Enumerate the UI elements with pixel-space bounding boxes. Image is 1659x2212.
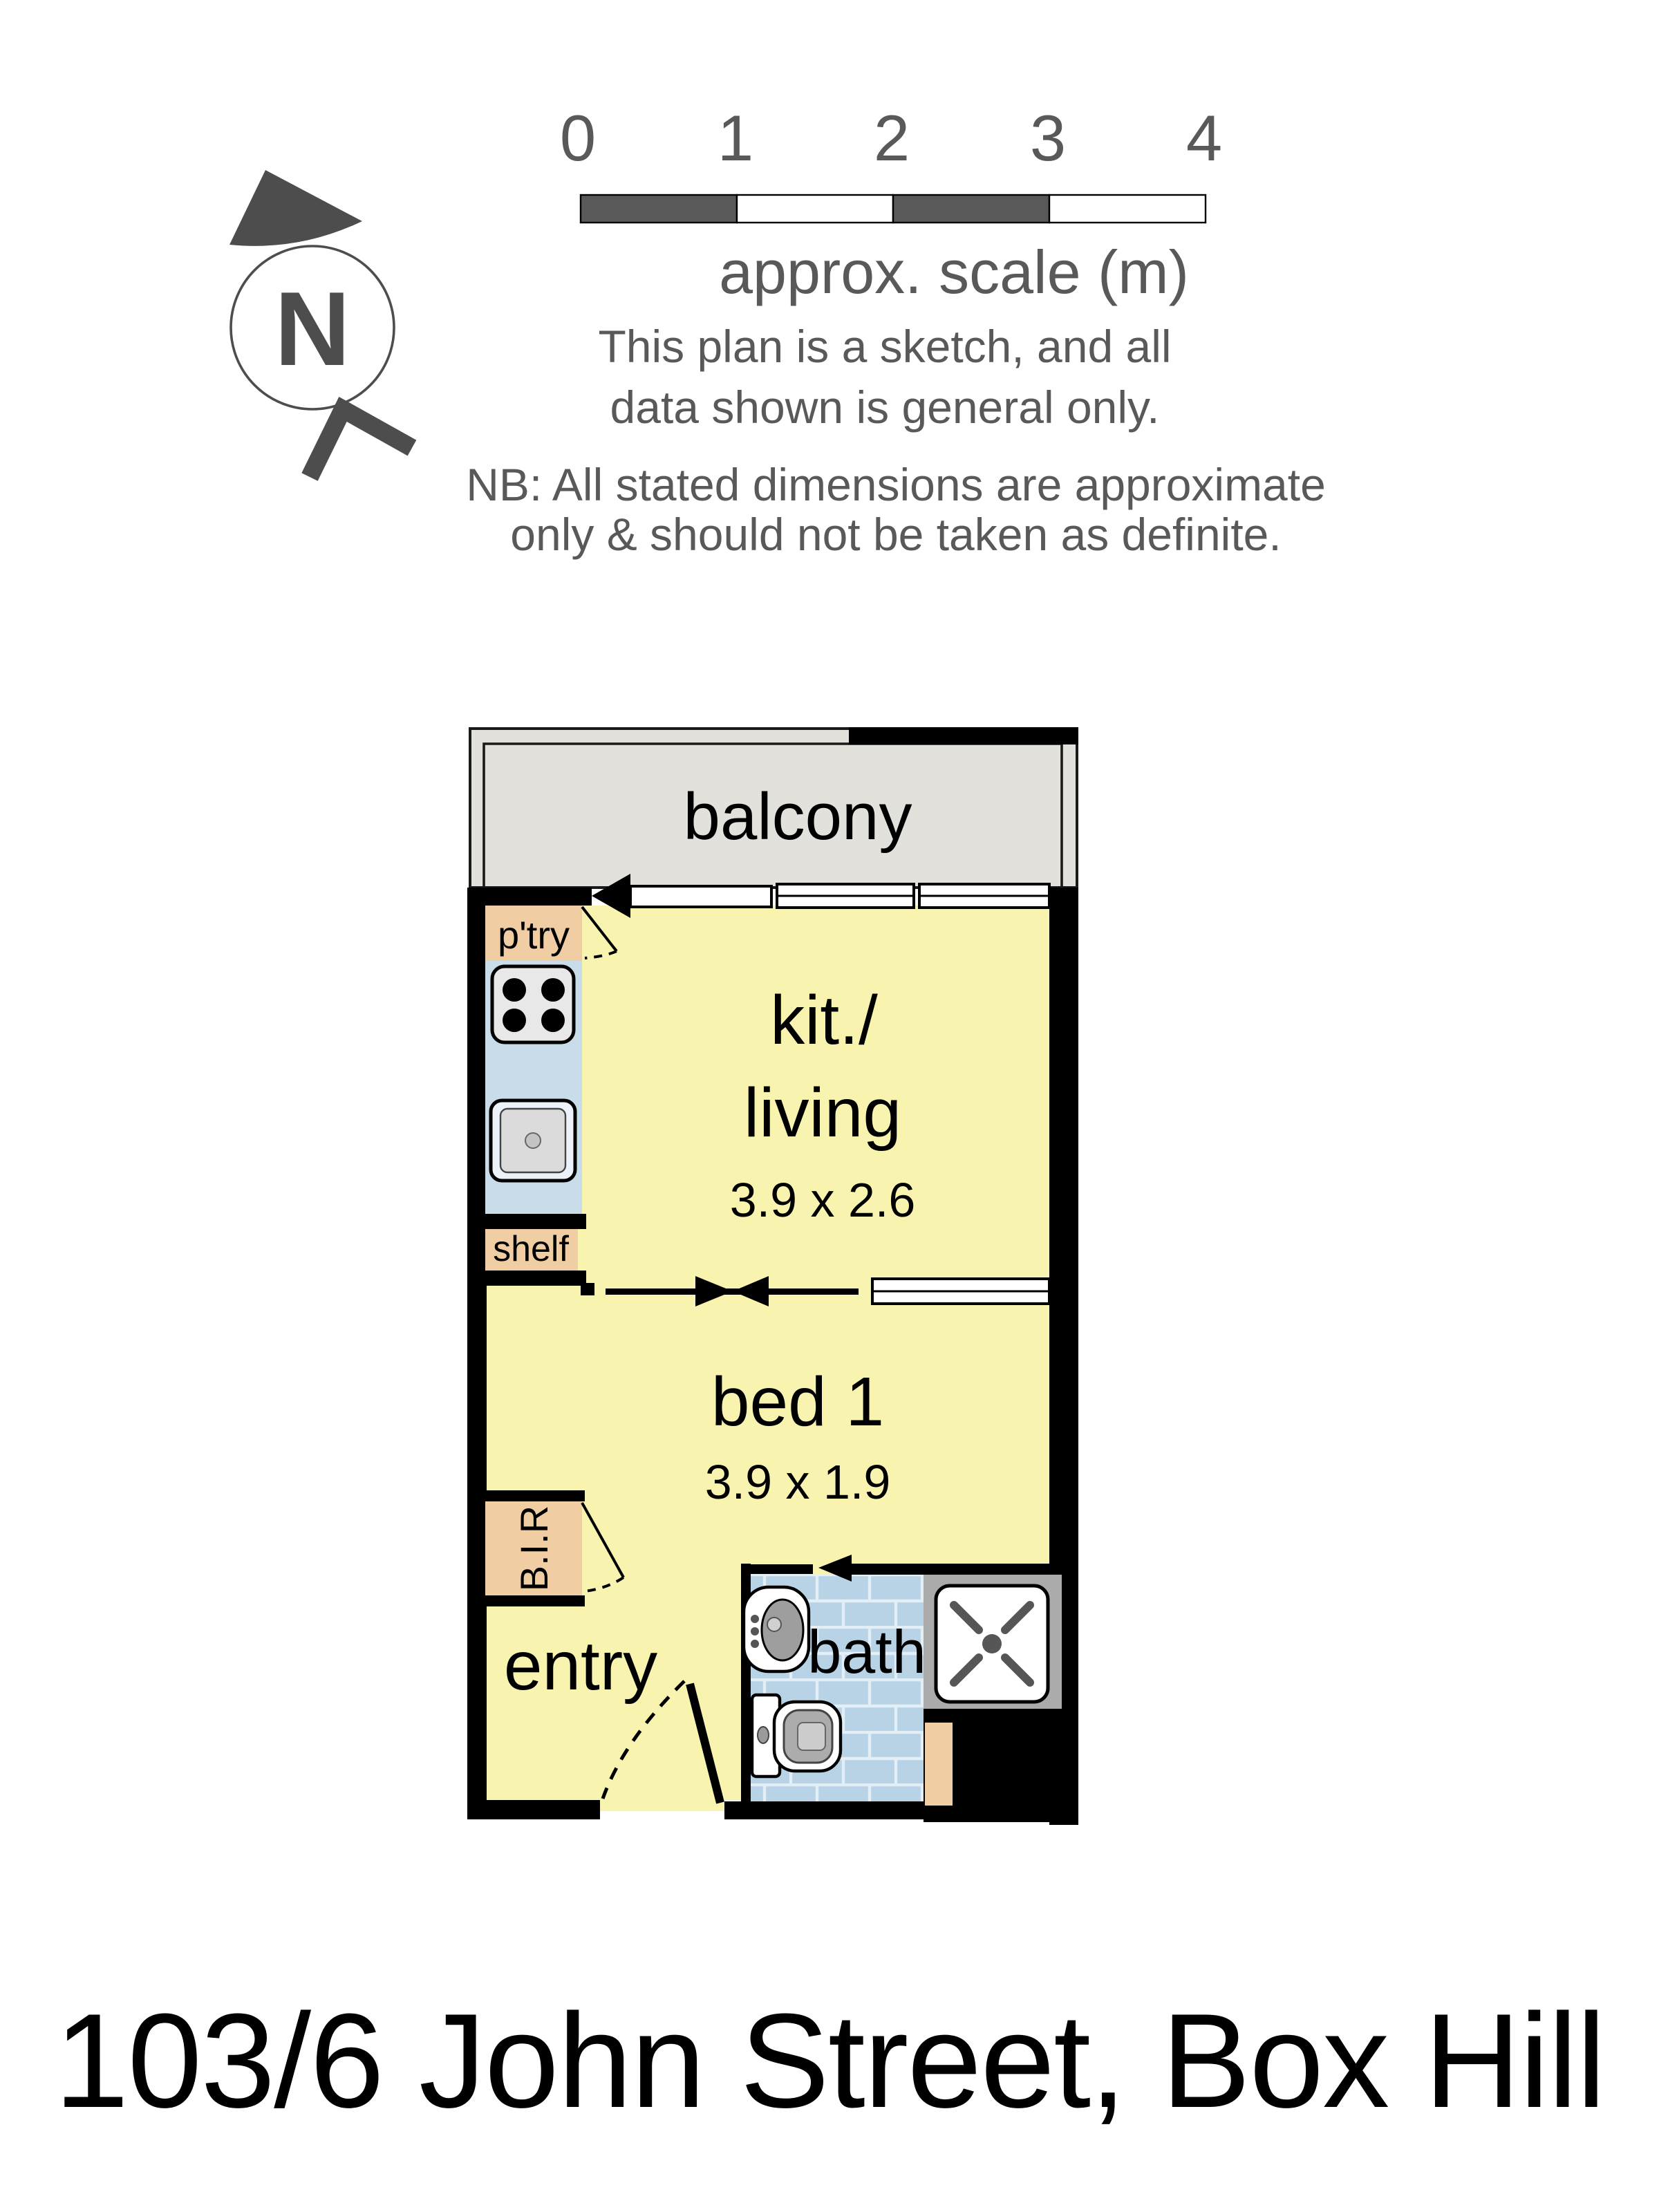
disclaimer-note1: NB: All stated dimensions are approximat… (466, 459, 1326, 510)
disclaimer-line2: data shown is general only. (610, 382, 1160, 433)
scale-caption: approx. scale (m) (719, 238, 1189, 306)
wall-above-bir (470, 1490, 585, 1501)
sliding-door-panel (630, 886, 771, 907)
toilet-icon (752, 1695, 841, 1777)
shower-icon (924, 1575, 1062, 1713)
floor-plan: balcony p'try (467, 727, 1078, 1825)
stove-icon (492, 966, 574, 1042)
sink-icon (491, 1100, 575, 1181)
service-block (924, 1709, 1078, 1822)
wall-bath-top-right (849, 1564, 1078, 1575)
kitchen-living-label-line2: living (744, 1074, 901, 1152)
entry-threshold (600, 1797, 724, 1811)
balcony-label: balcony (684, 780, 912, 854)
room-balcony: balcony (470, 727, 1078, 888)
kitchen-living-dimensions: 3.9 x 2.6 (730, 1173, 916, 1227)
wall-below-shelf (485, 1271, 586, 1286)
kitchen-living-label-line1: kit./ (770, 982, 878, 1059)
wall-balcony-top-right (849, 727, 1078, 744)
scale-tick-1: 1 (718, 102, 753, 174)
scale-tick-4: 4 (1186, 102, 1222, 174)
scale-tick-3: 3 (1030, 102, 1066, 174)
wall-left (467, 888, 487, 1819)
bed1-label: bed 1 (711, 1363, 884, 1441)
wall-stub (581, 1283, 594, 1295)
bath-label: bath (807, 1618, 926, 1686)
pantry-label: p'try (498, 913, 570, 957)
wall-bottom-left (467, 1800, 600, 1819)
basin-icon (744, 1587, 809, 1671)
scale-tick-2: 2 (874, 102, 910, 174)
north-label: N (274, 270, 350, 388)
shower-drain (982, 1634, 1002, 1653)
partition-line (606, 1288, 859, 1295)
wall-below-bir (470, 1595, 585, 1606)
wall-segment (470, 888, 592, 906)
wall-bath-top-left (741, 1564, 813, 1574)
entry-label: entry (504, 1627, 657, 1705)
room-bed1: bed 1 3.9 x 1.9 (705, 1363, 891, 1509)
shelf-label: shelf (493, 1229, 569, 1269)
bir-label: B.I.R (512, 1506, 556, 1591)
disclaimer-line1: This plan is a sketch, and all (598, 321, 1171, 372)
wall-bottom-mid (724, 1801, 924, 1819)
page-title: 103/6 John Street, Box Hill (55, 1986, 1605, 2136)
scale-tick-0: 0 (560, 102, 596, 174)
bed1-dimensions: 3.9 x 1.9 (705, 1455, 891, 1509)
service-duct (925, 1723, 953, 1806)
plan-title-group: 103/6 John Street, Box Hill (55, 1986, 1605, 2136)
wall-above-shelf (485, 1214, 586, 1229)
scale-bar-segments (581, 195, 1206, 223)
disclaimer-note2: only & should not be taken as definite. (510, 509, 1281, 560)
floorplan-page: N 0 1 2 3 4 approx. scale (m) This plan … (0, 0, 1659, 2212)
